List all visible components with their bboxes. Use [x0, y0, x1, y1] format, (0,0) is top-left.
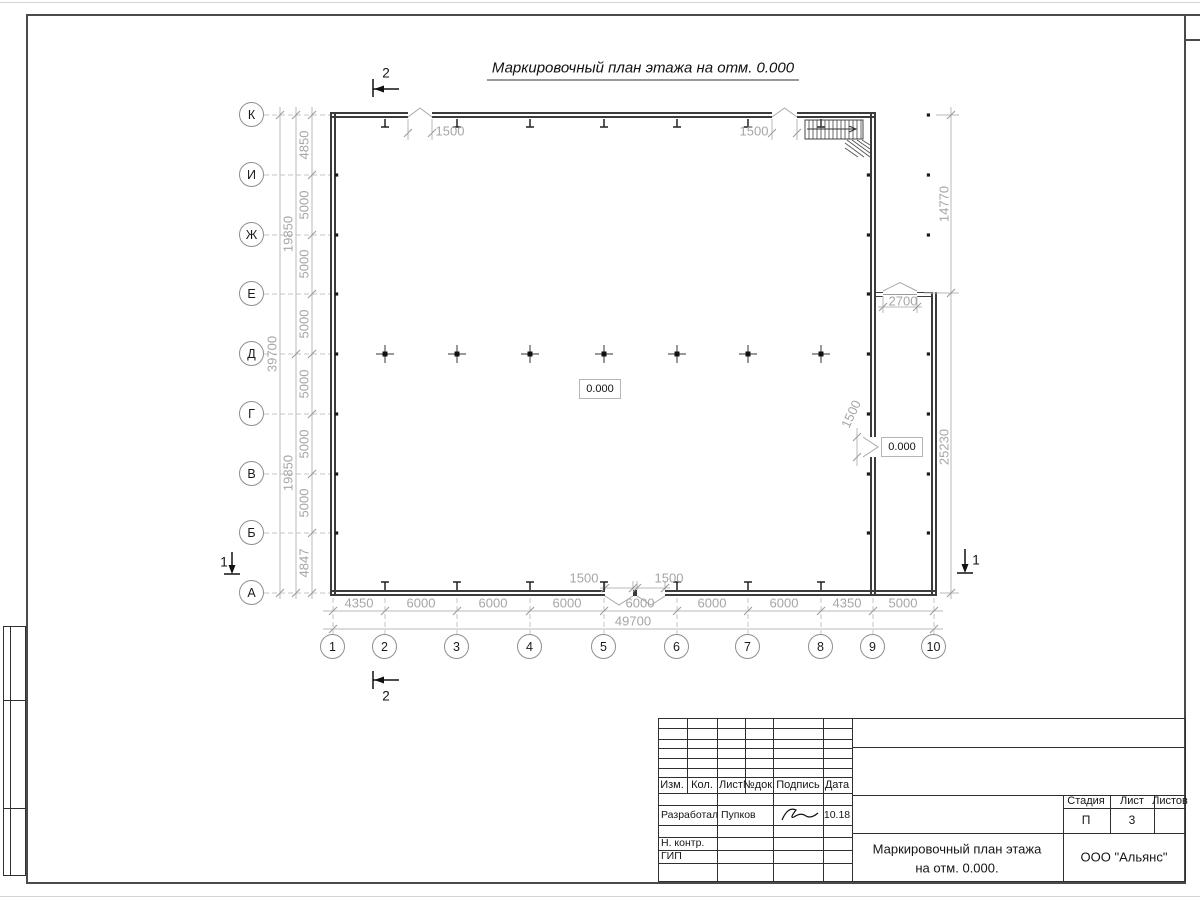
doc-title-line2: на отм. 0.000. — [915, 861, 998, 876]
title-block-line — [658, 793, 852, 794]
section-mark-label: 2 — [382, 66, 390, 81]
axis-circle-col: 3 — [444, 634, 469, 659]
tb-date: 10.18 — [824, 809, 850, 821]
title-block-line — [658, 728, 852, 729]
dim-label: 49700 — [615, 614, 651, 629]
dim-label: 19850 — [281, 216, 296, 252]
title-block-line — [687, 718, 688, 793]
section-arrow-bottom — [373, 671, 399, 689]
axis-circle-row: Ж — [239, 222, 264, 247]
axis-circle-col: 7 — [735, 634, 760, 659]
title-block-line — [717, 718, 718, 882]
tb-role: ГИП — [661, 850, 682, 862]
dim-label: 1500 — [570, 571, 599, 586]
section-mark-label: 2 — [382, 689, 390, 704]
title-block-line — [658, 850, 852, 851]
tb-role: Н. контр. — [661, 837, 704, 849]
dim-label: 25230 — [937, 429, 952, 465]
dim-label: 4847 — [297, 549, 312, 578]
dim-label: 6000 — [553, 596, 582, 611]
tb-header: Кол. — [691, 779, 713, 791]
tb-role: Разработал — [661, 809, 718, 821]
sheet-value: 3 — [1129, 813, 1136, 827]
dim-label: 6000 — [626, 596, 655, 611]
signature — [778, 804, 826, 826]
axis-circle-col: 9 — [860, 634, 885, 659]
tb-header: Дата — [825, 779, 849, 791]
axis-circle-col: 5 — [591, 634, 616, 659]
axis-circle-row: Г — [239, 401, 264, 426]
axis-circle-row: А — [239, 580, 264, 605]
title-block-line — [773, 718, 774, 882]
dim-label: 6000 — [698, 596, 727, 611]
column-marks — [376, 345, 830, 363]
axis-circle-col: 10 — [921, 634, 946, 659]
stage-value: П — [1082, 813, 1091, 827]
axis-circle-col: 2 — [372, 634, 397, 659]
section-arrow-right — [957, 549, 973, 573]
dim-label: 6000 — [770, 596, 799, 611]
title-block-line — [658, 758, 852, 759]
dim-label: 1500 — [436, 124, 465, 139]
tb-header: Лист — [719, 779, 743, 791]
dim-label: 5000 — [297, 370, 312, 399]
section-mark-label: 1 — [220, 555, 228, 570]
axis-circle-row: Б — [239, 520, 264, 545]
dim-label: 4350 — [345, 596, 374, 611]
title-block-line — [658, 739, 852, 740]
dim-label: 4350 — [833, 596, 862, 611]
dim-label: 1500 — [740, 124, 769, 139]
dim-label: 39700 — [265, 336, 280, 372]
tb-header: Изм. — [660, 779, 684, 791]
axis-circle-col: 1 — [320, 634, 345, 659]
stage-label: Стадия — [1067, 795, 1105, 807]
axis-circle-row: К — [239, 102, 264, 127]
section-mark-label: 1 — [972, 553, 980, 568]
title-block-line — [852, 833, 1186, 834]
dim-label: 5000 — [297, 489, 312, 518]
stair-icon — [805, 120, 870, 157]
dim-label: 5000 — [297, 310, 312, 339]
wall-column-dots — [335, 113, 930, 534]
title-block-line — [658, 777, 852, 778]
axis-circle-col: 8 — [808, 634, 833, 659]
axis-circle-col: 6 — [664, 634, 689, 659]
tb-name: Пупков — [721, 809, 756, 821]
section-arrow-top — [373, 79, 399, 97]
title-block-line — [852, 718, 853, 882]
dim-label: 5000 — [889, 596, 918, 611]
doc-title-line1: Маркировочный план этажа — [873, 842, 1042, 857]
axis-circle-row: И — [239, 162, 264, 187]
dimension-lines — [280, 107, 959, 629]
elevation-mark: 0.000 — [881, 437, 923, 457]
dimension-ticks — [276, 111, 955, 633]
title-block-line — [1110, 795, 1111, 833]
door-symbols — [408, 108, 917, 605]
dim-label: 5000 — [297, 250, 312, 279]
sheets-label: Листов — [1152, 795, 1188, 807]
axis-lines — [264, 115, 934, 635]
dim-label: 1500 — [655, 571, 684, 586]
title-block-line — [658, 768, 852, 769]
dim-label: 5000 — [297, 191, 312, 220]
sheet-label: Лист — [1120, 795, 1144, 807]
axis-circle-col: 4 — [517, 634, 542, 659]
dim-label: 2700 — [889, 294, 918, 309]
dim-label: 19850 — [281, 455, 296, 491]
axis-circle-row: Е — [239, 281, 264, 306]
dim-label: 6000 — [479, 596, 508, 611]
dim-label: 14770 — [937, 186, 952, 222]
tb-header: №док. — [743, 779, 775, 791]
title-block-line — [1063, 808, 1186, 809]
dim-label: 6000 — [407, 596, 436, 611]
tb-header: Подпись — [776, 779, 820, 791]
title-block-line — [852, 747, 1186, 748]
company-name: ООО "Альянс" — [1081, 850, 1168, 865]
axis-circle-row: В — [239, 461, 264, 486]
drawing-sheet: Маркировочный план этажа на отм. 0.000 — [0, 0, 1200, 900]
title-block-line — [823, 718, 824, 882]
title-block-line — [658, 748, 852, 749]
elevation-mark: 0.000 — [579, 379, 621, 399]
dim-label: 5000 — [297, 430, 312, 459]
axis-circle-row: Д — [239, 341, 264, 366]
dim-label: 4850 — [297, 131, 312, 160]
title-block-line — [658, 863, 852, 864]
